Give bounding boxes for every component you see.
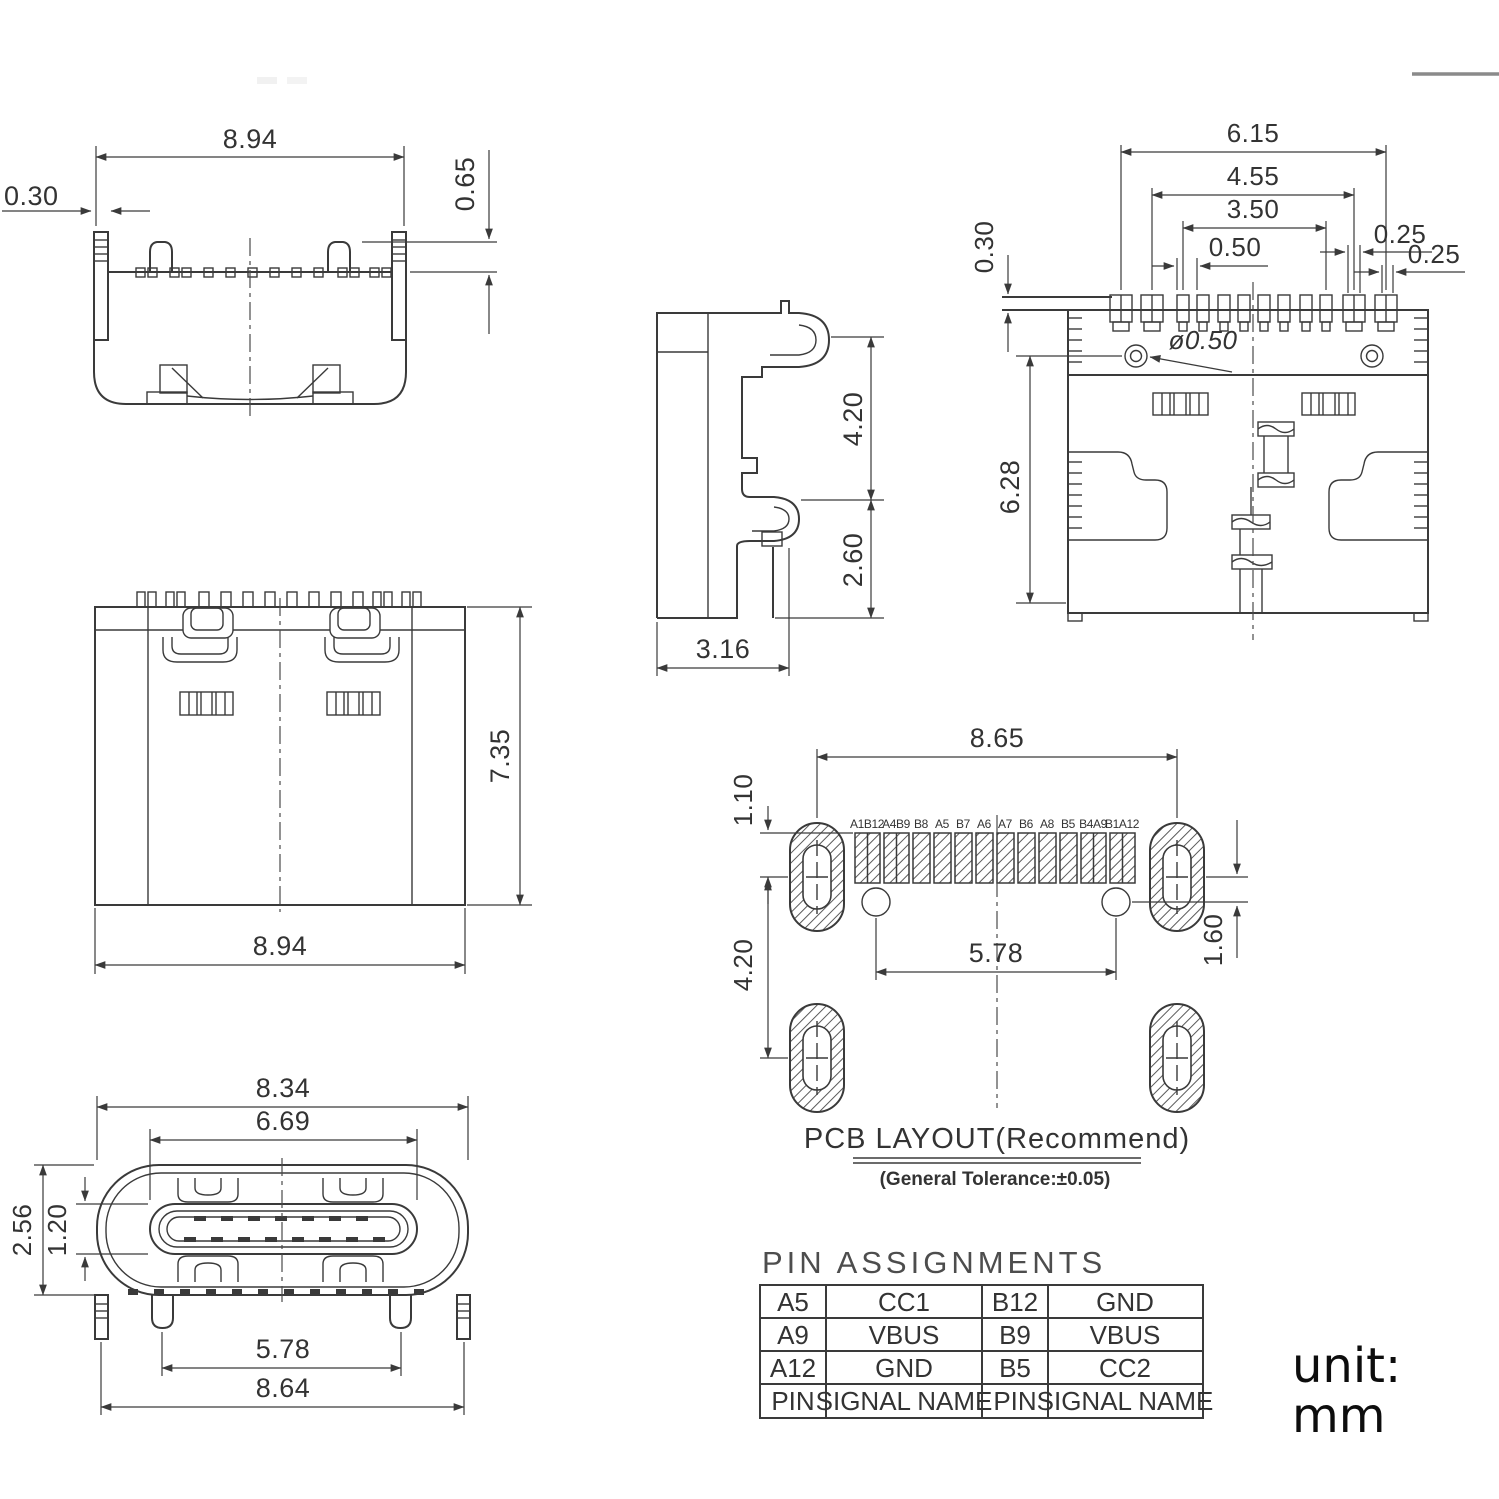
- dim-side-depth: 3.16: [696, 634, 751, 664]
- dim-back-pinw2: 0.25: [1408, 239, 1461, 269]
- dim-pcb-holespan: 5.78: [969, 938, 1024, 968]
- svg-text:VBUS: VBUS: [869, 1320, 940, 1350]
- pin-table-title: PIN ASSIGNMENTS: [762, 1245, 1106, 1280]
- pcb-layout: A1B12 A4B9 B8 A5 B7 A6 A7 B6 A8 B5 B4A9 …: [728, 723, 1248, 1190]
- scan-artifacts: [257, 74, 1499, 84]
- svg-text:B4A9: B4A9: [1079, 817, 1107, 831]
- back-view: 6.15 4.55 3.50 0.50 0.25 0.25 0.30: [969, 118, 1465, 640]
- svg-text:SIGNAL NAME: SIGNAL NAME: [1037, 1386, 1214, 1416]
- top-pins: [137, 592, 421, 607]
- dim-mating-sloth: 1.20: [42, 1204, 72, 1257]
- unit-note: unit: mm: [1292, 1338, 1401, 1444]
- dim-front-width: 8.94: [223, 124, 278, 154]
- dim-pcb-offset: 1.10: [728, 774, 758, 827]
- pcb-title: PCB LAYOUT(Recommend): [804, 1123, 1190, 1155]
- front-view: 8.94 0.30 0.65: [2, 124, 497, 416]
- svg-text:A5: A5: [777, 1287, 809, 1317]
- pin-assignments: PIN ASSIGNMENTS A5 CC1 B12 GND A9 VBUS B…: [760, 1245, 1213, 1418]
- pcb-subtitle: (General Tolerance:±0.05): [880, 1169, 1111, 1190]
- dim-back-lip: 0.30: [969, 221, 999, 274]
- svg-text:CC2: CC2: [1099, 1353, 1151, 1383]
- drawing-page: 8.94 0.30 0.65: [0, 0, 1499, 1499]
- svg-text:B9: B9: [999, 1320, 1031, 1350]
- dim-mating-openw: 6.69: [256, 1106, 311, 1136]
- svg-text:A5: A5: [935, 817, 950, 831]
- svg-text:A6: A6: [977, 817, 992, 831]
- mating-view: 8.34 6.69 2.56 1.20 5.78 8.64: [7, 1073, 470, 1415]
- dim-front-peg: 0.65: [450, 157, 480, 212]
- dim-back-height: 6.28: [995, 460, 1025, 515]
- svg-text:B8: B8: [914, 817, 929, 831]
- dim-pcb-edge: 1.60: [1198, 914, 1228, 967]
- top-view: 7.35 8.94: [95, 592, 532, 974]
- svg-text:A12: A12: [770, 1353, 816, 1383]
- svg-text:B7: B7: [956, 817, 971, 831]
- unit-label: unit:: [1292, 1338, 1401, 1394]
- svg-text:PIN: PIN: [993, 1386, 1036, 1416]
- svg-text:A8: A8: [1040, 817, 1055, 831]
- svg-text:B5: B5: [1061, 817, 1076, 831]
- tongue-contacts: [184, 1216, 385, 1242]
- svg-text:SIGNAL NAME: SIGNAL NAME: [816, 1386, 993, 1416]
- side-view: 4.20 2.60 3.16: [657, 301, 884, 676]
- svg-text:B5: B5: [999, 1353, 1031, 1383]
- dim-mating-outerh: 2.56: [7, 1204, 37, 1257]
- dim-back-span3: 3.50: [1227, 194, 1280, 224]
- dim-pcb-rowgap: 4.20: [728, 939, 758, 992]
- svg-text:A4B9: A4B9: [882, 817, 910, 831]
- unit-value: mm: [1292, 1388, 1386, 1444]
- svg-text:B1A12: B1A12: [1105, 817, 1140, 831]
- dim-top-height: 7.35: [485, 729, 515, 784]
- dim-back-pitch: 0.50: [1209, 232, 1262, 262]
- smt-pads: [855, 833, 1135, 883]
- svg-text:A9: A9: [777, 1320, 809, 1350]
- dim-mating-totalw: 8.64: [256, 1373, 311, 1403]
- dim-front-tab: 0.30: [4, 181, 59, 211]
- edge-ladders: [1068, 318, 1428, 528]
- dim-mating-legspan: 5.78: [256, 1334, 311, 1364]
- pad-labels: A1B12 A4B9 B8 A5 B7 A6 A7 B6 A8 B5 B4A9 …: [850, 817, 1140, 831]
- svg-text:GND: GND: [1096, 1287, 1154, 1317]
- dim-back-span1: 6.15: [1227, 118, 1280, 148]
- dim-back-hole: ø0.50: [1169, 325, 1238, 355]
- shield-springs: [178, 1178, 383, 1282]
- svg-text:CC1: CC1: [878, 1287, 930, 1317]
- svg-text:PIN: PIN: [771, 1386, 814, 1416]
- svg-text:GND: GND: [875, 1353, 933, 1383]
- usb-c-connector-drawing: 8.94 0.30 0.65: [0, 0, 1499, 1499]
- dim-side-upper: 4.20: [838, 392, 868, 447]
- dim-mating-outerw: 8.34: [256, 1073, 311, 1103]
- svg-text:A1B12: A1B12: [850, 817, 885, 831]
- dim-back-span2: 4.55: [1227, 161, 1280, 191]
- center-clips: [1232, 422, 1294, 613]
- svg-text:A7: A7: [998, 817, 1013, 831]
- svg-text:B6: B6: [1019, 817, 1034, 831]
- dim-side-lower: 2.60: [838, 533, 868, 588]
- svg-text:VBUS: VBUS: [1090, 1320, 1161, 1350]
- back-hatch-details: [1153, 393, 1355, 415]
- dim-top-width: 8.94: [253, 931, 308, 961]
- dim-pcb-span: 8.65: [970, 723, 1025, 753]
- svg-text:B12: B12: [992, 1287, 1038, 1317]
